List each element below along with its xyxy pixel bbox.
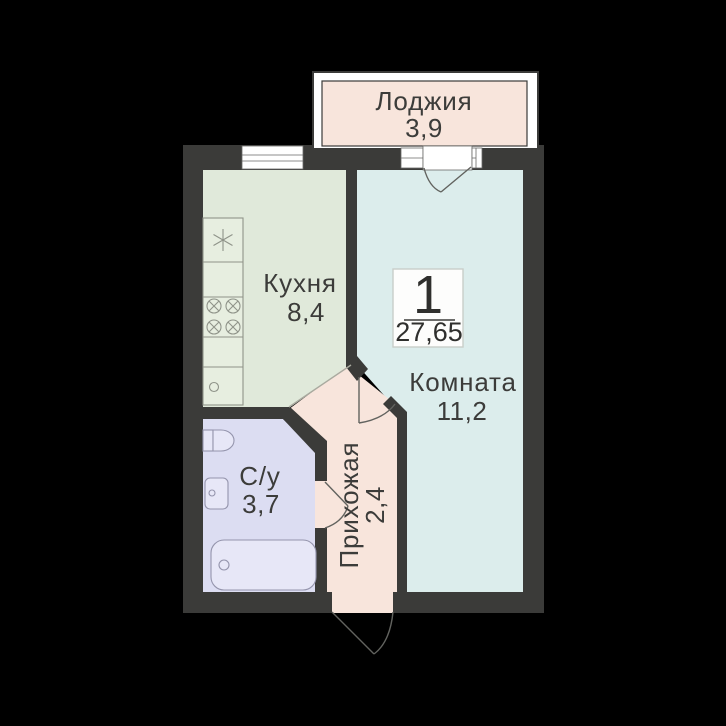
unit-badge: 1 27,65 [393,265,463,347]
loggia-label: Лоджия [376,86,473,116]
kitchen-counter [203,218,243,405]
bathtub-icon [211,540,316,590]
kitchen-area-value: 8,4 [287,297,325,327]
unit-number: 1 [413,265,443,325]
living-room-area-value: 11,2 [437,396,488,426]
wall-kitchen-bathroom [183,407,290,419]
living-room-label: Комната [409,367,516,397]
bathroom-area-value: 3,7 [242,489,280,519]
bathroom-label: С/у [239,461,280,491]
loggia-area-value: 3,9 [405,113,443,143]
bathroom-sink-icon [205,478,228,509]
kitchen-window [242,146,303,169]
kitchen-label: Кухня [263,268,337,298]
wall-bathroom-hallway-upper [315,441,327,481]
floor-plan-canvas: Лоджия 3,9 [0,0,726,726]
balcony-door-opening [423,146,472,170]
wall-bathroom-hallway-lower [315,528,327,592]
hallway-area-value: 2,4 [360,486,390,524]
entrance-gap [332,592,393,613]
floor-plan: Лоджия 3,9 [0,0,726,726]
toilet-icon [203,430,234,451]
unit-total-area: 27,65 [395,317,463,347]
loggia-block: Лоджия 3,9 [313,72,538,149]
